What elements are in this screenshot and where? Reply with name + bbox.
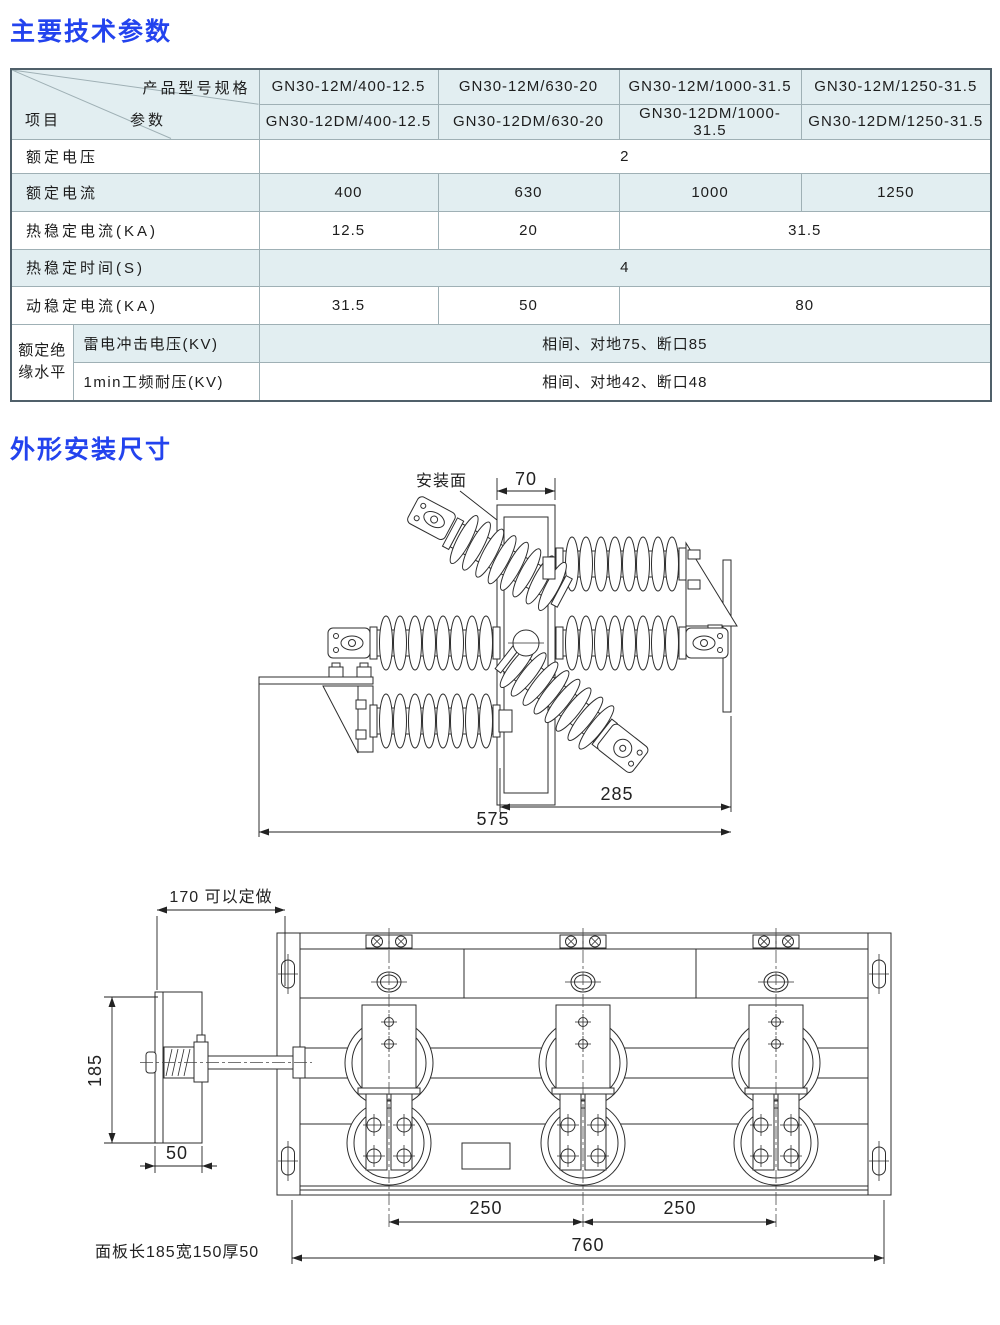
dim-760-text: 760 <box>571 1235 604 1255</box>
corner-label-model: 产品型号规格 <box>142 77 250 98</box>
model-header: GN30-12M/1000-31.5 <box>619 69 801 104</box>
mounting-face-text: 安装面 <box>416 472 467 490</box>
model-header: GN30-12M/1250-31.5 <box>801 69 991 104</box>
dimension-170-custom: 170 可以定做 <box>157 888 285 990</box>
insulator-top-right <box>556 537 686 591</box>
dim-285-text: 285 <box>600 784 633 804</box>
row-label-lightning-impulse: 雷电冲击电压(KV) <box>73 324 259 362</box>
model-header: GN30-12M/400-12.5 <box>259 69 438 104</box>
insulator-bottom-left <box>370 694 512 748</box>
row-label-thermal-time: 热稳定时间(S) <box>11 249 259 286</box>
dim-170-text: 170 可以定做 <box>169 888 272 906</box>
model-header: GN30-12DM/1250-31.5 <box>801 104 991 139</box>
outline-drawing-side-view: 安装面 70 285 575 <box>0 460 1000 855</box>
value-cell: 2 <box>259 139 991 173</box>
dim-70-text: 70 <box>515 469 537 489</box>
technical-parameters-table: 产品型号规格 参数 项目 GN30-12M/400-12.5 GN30-12M/… <box>10 68 992 402</box>
nameplate <box>462 1143 510 1169</box>
row-label-thermal-current: 热稳定电流(KA) <box>11 211 259 249</box>
dim-250-right-text: 250 <box>663 1198 696 1218</box>
row-group-insulation-level: 额定绝缘水平 <box>11 324 73 401</box>
value-cell: 相间、对地42、断口48 <box>259 362 991 401</box>
model-header: GN30-12DM/400-12.5 <box>259 104 438 139</box>
row-label-rated-current: 额定电流 <box>11 173 259 211</box>
value-cell: 1000 <box>619 173 801 211</box>
model-header: GN30-12DM/630-20 <box>438 104 619 139</box>
dim-185-text: 185 <box>85 1054 105 1087</box>
value-cell: 400 <box>259 173 438 211</box>
dim-575-text: 575 <box>476 809 509 829</box>
outline-drawing-front-view: 170 可以定做 185 50 250 <box>0 880 1000 1280</box>
right-side-flange <box>868 933 891 1195</box>
value-cell: 31.5 <box>259 286 438 324</box>
value-cell: 50 <box>438 286 619 324</box>
row-label-rated-voltage: 额定电压 <box>11 139 259 173</box>
value-cell: 4 <box>259 249 991 286</box>
dimension-575: 575 <box>259 809 731 836</box>
value-cell: 20 <box>438 211 619 249</box>
value-cell: 相间、对地75、断口85 <box>259 324 991 362</box>
diagonal-header-cell: 产品型号规格 参数 项目 <box>11 69 259 139</box>
dim-50-text: 50 <box>166 1143 188 1163</box>
model-header: GN30-12DM/1000-31.5 <box>619 104 801 139</box>
dimension-250-left: 250 <box>389 1198 583 1226</box>
dimension-760: 760 <box>292 1200 884 1264</box>
section-title-parameters: 主要技术参数 <box>10 12 172 48</box>
catalog-page: 主要技术参数 产品型号规格 参数 项目 GN30-12M/400-12.5 GN… <box>0 0 1000 1325</box>
value-cell: 12.5 <box>259 211 438 249</box>
value-cell: 1250 <box>801 173 991 211</box>
row-label-power-frequency: 1min工频耐压(KV) <box>73 362 259 401</box>
corner-label-item: 项目 <box>25 109 61 130</box>
value-cell: 630 <box>438 173 619 211</box>
panel-size-caption: 面板长185宽150厚50 <box>95 1243 259 1261</box>
corner-label-parameter: 参数 <box>130 109 166 130</box>
row-label-dynamic-current: 动稳定电流(KA) <box>11 286 259 324</box>
left-mounting-wall <box>259 663 373 837</box>
dimension-250-right: 250 <box>583 1198 776 1226</box>
value-cell: 31.5 <box>619 211 991 249</box>
value-cell: 80 <box>619 286 991 324</box>
dimension-50: 50 <box>140 1143 217 1173</box>
dim-250-left-text: 250 <box>469 1198 502 1218</box>
model-header: GN30-12M/630-20 <box>438 69 619 104</box>
insulator-mid-left <box>328 616 500 670</box>
dimension-70: 70 <box>497 469 555 500</box>
